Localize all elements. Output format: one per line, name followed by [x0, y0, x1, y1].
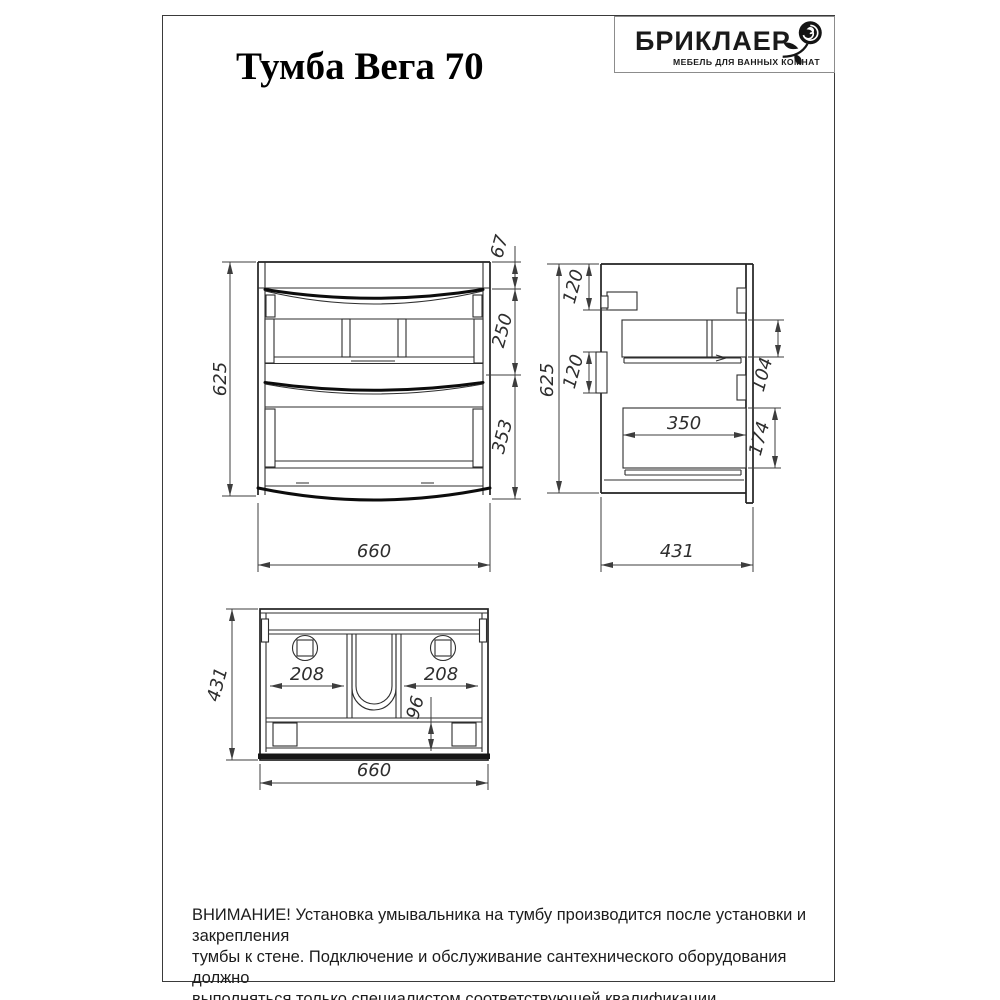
corner-block: [273, 723, 297, 746]
drawer1-divider: [342, 319, 350, 357]
dim-side-bracket-mid-offset: 120: [559, 352, 588, 391]
front-bracket: [737, 288, 746, 313]
dim-side-overall-height: 625: [537, 363, 558, 397]
dividers: [347, 634, 401, 718]
side-view: [596, 264, 753, 503]
dim-front-overall-height: 625: [210, 362, 231, 396]
dim-front-overall-width: 660: [357, 541, 391, 562]
front-view: [258, 262, 490, 500]
dim-top-back-section: 96: [403, 694, 429, 722]
runner-bracket-top: [607, 292, 637, 310]
corner-block: [452, 723, 476, 746]
technical-drawing: 625 67 250 353 660: [0, 0, 1000, 1000]
warning-line: выполняться только специалистом соответс…: [192, 989, 832, 1000]
fixing-hole: [431, 636, 456, 661]
warning-text: ВНИМАНИЕ! Установка умывальника на тумбу…: [192, 905, 832, 1000]
drawer1-left-hook: [266, 295, 275, 317]
dim-side-overall-depth: 431: [660, 541, 694, 562]
fixing-hole: [293, 636, 318, 661]
warning-line: тумбы к стене. Подключение и обслуживани…: [192, 947, 832, 989]
drawer1-curved-edge: [265, 290, 483, 299]
dim-front-top-section: 67: [487, 232, 513, 260]
dim-top-overall-width: 660: [357, 760, 391, 781]
page: Тумба Вега 70 БРИКЛАЕР МЕБЕЛЬ ДЛЯ ВАННЫХ…: [0, 0, 1000, 1000]
dim-side-bracket-top-offset: 120: [559, 267, 588, 306]
front-view-dimensions: 625 67 250 353 660: [210, 232, 521, 572]
front-edge-band: [258, 754, 490, 760]
dim-top-left-compartment: 208: [290, 664, 324, 685]
drawer1-right-hook: [473, 295, 482, 317]
dim-side-drawer-depth: 350: [667, 413, 701, 434]
dim-top-overall-depth: 431: [203, 665, 232, 704]
upper-drawer-box: [622, 320, 746, 357]
warning-line: ВНИМАНИЕ! Установка умывальника на тумбу…: [192, 905, 832, 947]
front-bracket: [737, 375, 746, 400]
bottom-curved-edge: [258, 488, 490, 500]
dim-side-lower-drawer-height: 174: [745, 419, 774, 458]
wall-mount-bracket: [596, 352, 607, 393]
sink-cutout: [352, 634, 396, 710]
dim-front-lower-drawer: 353: [488, 417, 517, 456]
dim-front-upper-drawer: 250: [488, 311, 517, 350]
drawer1-divider: [398, 319, 406, 357]
dim-top-right-compartment: 208: [424, 664, 458, 685]
